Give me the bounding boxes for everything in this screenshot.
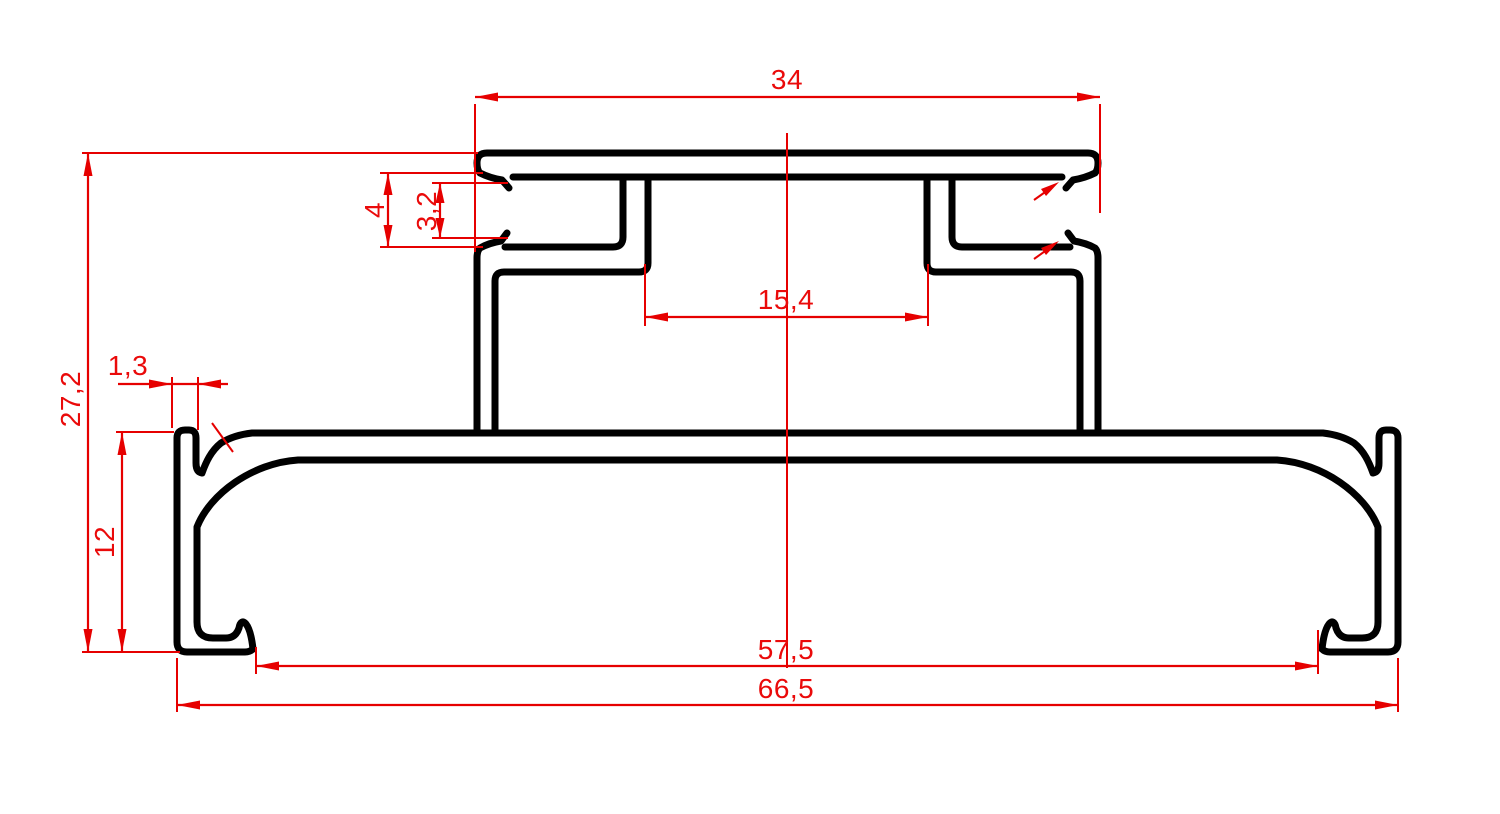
label-neck-opening: 15,4 (758, 284, 815, 315)
label-groove-mouth-outer: 4 (359, 202, 390, 218)
label-base-inner-span: 57,5 (758, 634, 815, 665)
label-overall-width: 66,5 (758, 673, 815, 704)
arrow-overall-width-left (177, 701, 200, 710)
arrow-total-height-bottom (84, 629, 93, 652)
arrow-base-span-right (1295, 662, 1318, 671)
right-groove (952, 180, 1070, 247)
arrow-base-span-left (256, 662, 279, 671)
arrow-base-height-bottom (118, 629, 127, 652)
profile-drawing-svg: 34 27,2 4 3,2 15,4 1,3 12 57,5 66,5 (0, 0, 1500, 814)
arrow-overall-width-right (1375, 701, 1398, 710)
left-groove (505, 180, 623, 247)
arrow-lip-left (149, 380, 172, 389)
dimension-annotations (82, 93, 1398, 713)
arrow-base-height-top (118, 432, 127, 455)
arrow-top-width-left (475, 93, 498, 102)
arrow-neck-left (645, 313, 668, 322)
label-base-height: 12 (89, 526, 120, 558)
arrow-groove-outer-top (384, 173, 393, 195)
arrow-total-height-top (84, 153, 93, 176)
arrow-neck-right (905, 313, 928, 322)
label-groove-mouth-inner: 3,2 (411, 191, 442, 231)
arrow-lip-right (198, 380, 221, 389)
label-total-height: 27,2 (55, 371, 86, 428)
technical-drawing-canvas: 34 27,2 4 3,2 15,4 1,3 12 57,5 66,5 (0, 0, 1500, 814)
label-edge-wall-thickness: 1,3 (108, 350, 148, 381)
arrow-groove-outer-bottom (384, 225, 393, 247)
arrow-top-width-right (1077, 93, 1100, 102)
label-top-width: 34 (771, 64, 803, 95)
